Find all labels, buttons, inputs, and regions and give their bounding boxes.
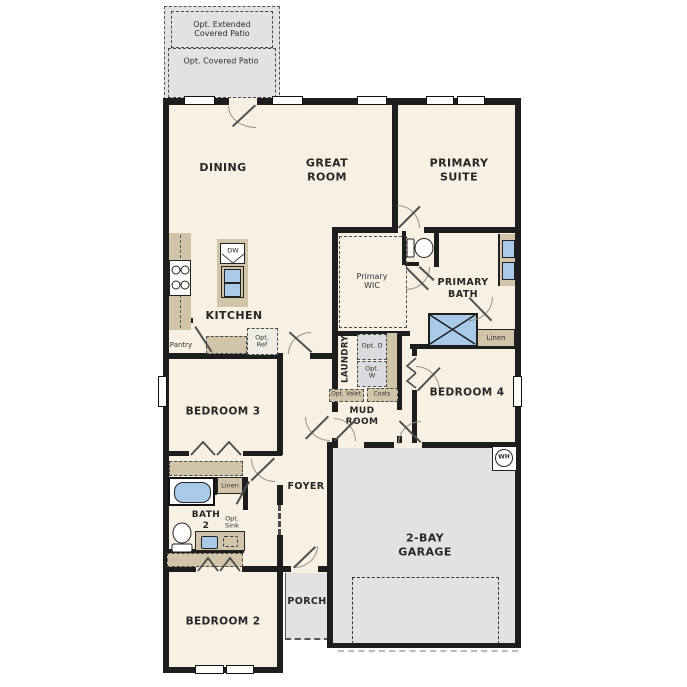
window	[272, 96, 303, 105]
wall	[364, 442, 394, 448]
entry-opening	[229, 98, 257, 105]
toilet-icon	[170, 522, 194, 554]
opt-sink-outline	[223, 536, 238, 547]
garage-label: 2-BAY GARAGE	[389, 531, 461, 559]
wall	[277, 535, 283, 568]
wall	[327, 442, 333, 648]
wall	[277, 566, 283, 673]
opt-dryer-label: Opt. D	[361, 342, 383, 349]
cooktop-icon	[169, 260, 191, 296]
great-room-label: GREAT ROOM	[300, 156, 354, 184]
bedroom2-label: BEDROOM 2	[186, 615, 261, 628]
opt-valet-label: Opt. Valet	[328, 392, 364, 399]
window	[158, 376, 167, 407]
vanity-sink	[502, 240, 515, 258]
window	[426, 96, 454, 105]
window	[513, 376, 522, 407]
bedroom3-closet	[169, 461, 243, 476]
wall	[405, 262, 419, 266]
island-sink	[221, 266, 244, 298]
bath2-linen-label: Linen	[217, 482, 243, 489]
coats-label: Coats	[367, 392, 397, 399]
bedroom3-label: BEDROOM 3	[186, 405, 261, 418]
driveway-dashes	[338, 650, 518, 652]
kitchen-south-counter	[206, 336, 247, 354]
wall	[515, 98, 521, 648]
porch-label: PORCH	[287, 596, 326, 608]
bedroom4-label: BEDROOM 4	[430, 386, 505, 399]
laundry-label: LAUNDRY	[341, 335, 352, 383]
wall	[318, 566, 332, 572]
foyer-label: FOYER	[288, 481, 325, 493]
covered-patio-label: Opt. Covered Patio	[166, 56, 276, 65]
wall	[166, 451, 189, 456]
sink-basin	[224, 269, 241, 283]
kitchen-label: KITCHEN	[206, 309, 263, 323]
tub-basin	[174, 482, 211, 503]
opt-sink-label: Opt. Sink	[220, 516, 244, 531]
wall	[277, 353, 283, 455]
extended-patio-label: Opt. Extended Covered Patio	[180, 20, 264, 38]
wall	[243, 451, 282, 456]
wall	[277, 485, 283, 505]
primary-wic-label: Primary WIC	[348, 272, 396, 290]
floor-plan: Opt. Extended Covered Patio Opt. Covered…	[0, 0, 687, 687]
window	[457, 96, 485, 105]
wall	[283, 566, 291, 572]
opening-chevrons	[189, 440, 243, 456]
opt-ref-label: Opt. Ref	[249, 335, 275, 350]
dining-label: DINING	[199, 161, 246, 175]
dishwasher: DW	[220, 243, 245, 264]
opening-chevrons	[404, 356, 418, 390]
wall	[332, 227, 396, 233]
vanity-sink	[502, 262, 515, 280]
opening-chevrons	[196, 556, 242, 572]
opt-washer-label: Opt. W	[361, 366, 383, 381]
primary-suite-label: PRIMARY SUITE	[424, 156, 494, 184]
toilet-icon	[406, 236, 436, 260]
primary-bath-label: PRIMARY BATH	[432, 277, 494, 301]
wall	[412, 344, 417, 356]
laundry-cabinet	[387, 333, 397, 388]
optional-opening-dashes	[278, 505, 281, 535]
window	[184, 96, 215, 105]
dishwasher-label: DW	[227, 247, 238, 254]
wall	[332, 227, 338, 412]
water-heater-label: WH	[498, 455, 510, 462]
vanity-sink	[201, 536, 218, 549]
sink-basin	[224, 283, 241, 297]
window	[195, 665, 224, 674]
tub	[168, 477, 215, 506]
window	[226, 665, 254, 674]
primary-linen-label: Linen	[479, 334, 513, 342]
garage-door-outline	[352, 577, 499, 644]
pantry-label: Pantry	[164, 341, 198, 349]
window	[357, 96, 387, 105]
wall	[310, 353, 332, 359]
